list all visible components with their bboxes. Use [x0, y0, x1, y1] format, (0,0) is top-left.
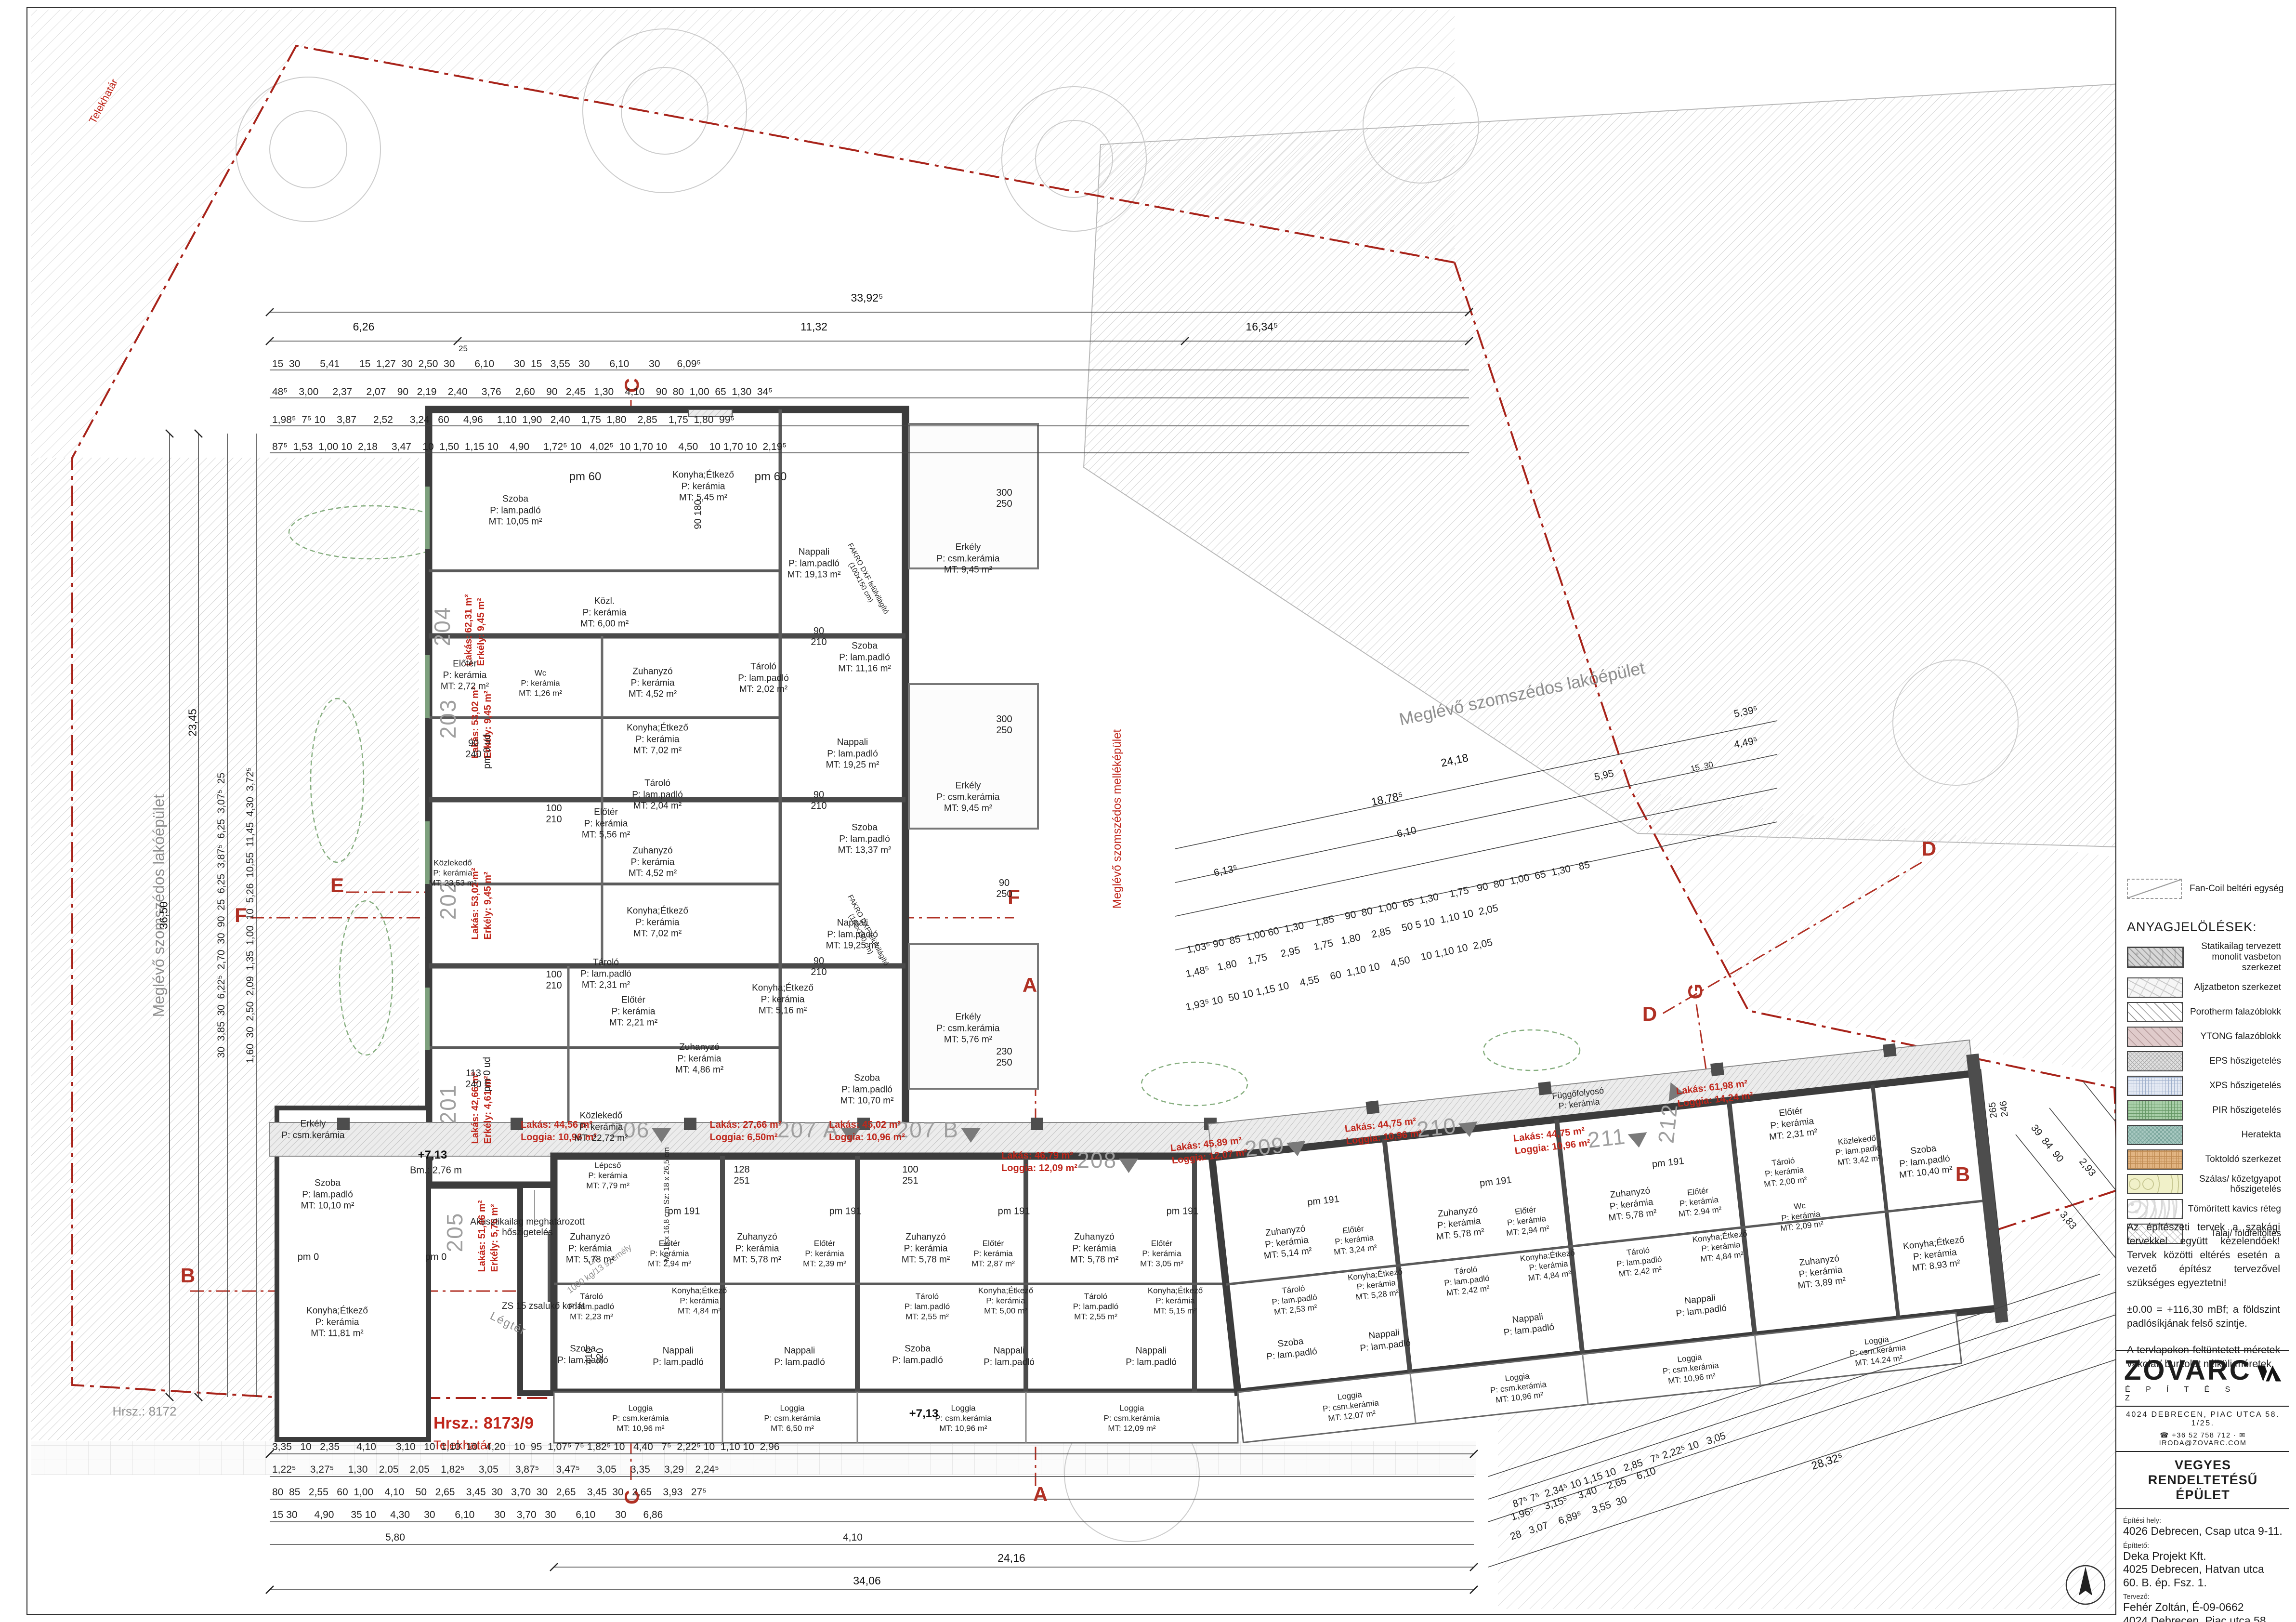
room-label: Konyha;Étkező P: kerámia MT: 5,15 m²	[1148, 1285, 1203, 1316]
office-address: 4024 DEBRECEN, PIAC UTCA 58. 1/25.	[2116, 1406, 2289, 1432]
swatch-aljzatbeton	[2127, 977, 2183, 998]
room-label: Szoba P: lam.padló	[892, 1343, 943, 1366]
note-coordination: Az építészeti tervek a szakági tervekkel…	[2127, 1221, 2280, 1291]
level-height: Bm.: 2,76 m	[410, 1165, 462, 1176]
dim-mark: 100 210	[546, 969, 562, 991]
dim-row: 15 30 4,90 35 10 4,30 30 6,10 30 3,70 30…	[272, 1509, 663, 1521]
room-label: Konyha;Étkező P: kerámia MT: 11,81 m²	[306, 1306, 368, 1340]
brand-name: ZOVARC	[2124, 1357, 2252, 1385]
room-label: Előtér P: kerámia MT: 2,21 m²	[609, 995, 657, 1029]
field-value: Fehér Zoltán, É-09-0662 4024 Debrecen, P…	[2123, 1601, 2283, 1622]
dim-mark: 90 240	[465, 738, 481, 760]
dim-total: 33,92⁵	[851, 291, 883, 304]
dim-mark: 100 210	[546, 803, 562, 825]
dim-row: 30 3,85 30 6,22⁵ 2,70 30 90 25 6,25 3,87…	[216, 773, 227, 1058]
dim-total: 36,50	[157, 901, 171, 929]
pm-mark: pm 0	[425, 1252, 446, 1263]
dim-total: 34,06	[853, 1574, 881, 1587]
field-value: 4026 Debrecen, Csap utca 9-11.	[2123, 1525, 2283, 1538]
level-mark: +7,13	[418, 1148, 447, 1162]
room-label: Tároló P: lam.padló MT: 2,04 m²	[632, 778, 683, 812]
room-label: Tároló P: lam.padló MT: 2,31 m²	[580, 957, 631, 991]
room-label: Előtér P: kerámia MT: 2,39 m²	[803, 1238, 846, 1268]
section-marker-D-left: D	[1642, 1002, 1657, 1026]
room-label: Zuhanyzó P: kerámia MT: 4,86 m²	[675, 1042, 723, 1076]
dim-mark: 230 250	[996, 1046, 1012, 1068]
dim-sub: 25	[459, 344, 468, 354]
room-label: Előtér P: kerámia MT: 5,56 m²	[582, 807, 630, 841]
field-value: Deka Projekt Kft. 4025 Debrecen, Hatvan …	[2123, 1550, 2283, 1590]
section-marker-B-right: B	[1955, 1163, 1970, 1186]
room-label: Konyha;Étkező P: kerámia MT: 5,00 m²	[978, 1285, 1033, 1316]
stair-geometry-note: M: 19 x 16,8 cm Sz: 18 x 26,5 cm	[663, 1147, 671, 1261]
room-label: Közlekedő P: kerámia MT: 23,53 m²	[429, 857, 476, 888]
room-label: Zuhanyzó P: kerámia MT: 5,78 m²	[566, 1232, 614, 1266]
room-label: Zuhanyzó P: kerámia MT: 5,78 m²	[733, 1232, 781, 1266]
room-label: Nappali P: lam.padló	[774, 1345, 825, 1368]
fancoil-label: Fan-Coil beltéri egység	[2190, 884, 2283, 894]
room-label: Zuhanyzó P: kerámia MT: 5,78 m²	[902, 1232, 950, 1266]
pm-mark: pm 60	[569, 470, 602, 484]
dim-row: 3,35 10 2,35 4,10 3,10 10 1,10 10 4,20 1…	[272, 1441, 779, 1453]
room-label: Tároló P: lam.padló MT: 2,55 m²	[905, 1291, 950, 1321]
section-marker-A-top: A	[1023, 974, 1037, 997]
unit-208-triangle	[1119, 1159, 1139, 1173]
legend-item: Toktoldó szerkezet	[2127, 1149, 2281, 1170]
legend-item: Szálas/ kőzetgyapot hőszigetelés	[2127, 1174, 2281, 1195]
room-label: Zuhanyzó P: kerámia MT: 4,52 m²	[629, 666, 677, 700]
info-panel: Fan-Coil beltéri egység ANYAGJELÖLÉSEK: …	[2115, 7, 2290, 1615]
dim-total: 23,45	[186, 709, 199, 737]
dim-mark: 90 180	[693, 500, 704, 529]
dim-mark: 90 210	[811, 956, 827, 978]
dim-seg: 6,26	[353, 320, 375, 333]
unit-204-areas: Lakás: 62,31 m²Erkély: 9,45 m²	[462, 594, 487, 666]
level-mark: +7,13	[909, 1407, 939, 1421]
room-label: Loggia P: csm.kerámia MT: 12,09 m²	[1103, 1403, 1160, 1433]
unit-206-triangle	[652, 1128, 671, 1143]
materials-legend: ANYAGJELÖLÉSEK: Statikailag tervezett mo…	[2127, 920, 2281, 1248]
field-label: Tervező:	[2123, 1593, 2283, 1601]
legend-item: EPS hőszigetelés	[2127, 1051, 2281, 1071]
unit-204-number: 204	[429, 607, 455, 646]
legend-item: Heratekta	[2127, 1125, 2281, 1145]
room-label: Tároló P: lam.padló MT: 2,23 m²	[569, 1291, 615, 1321]
dim-mark: 100 251	[902, 1164, 918, 1187]
unit-207A-areas: Lakás: 27,66 m²Loggia: 6,50m²	[710, 1119, 782, 1144]
swatch-kozetgyapot	[2127, 1174, 2183, 1194]
dim-total: 24,16	[997, 1552, 1025, 1565]
room-label: Tároló P: lam.padló MT: 2,55 m²	[1073, 1291, 1119, 1321]
legend-item: Tömörített kavics réteg	[2127, 1199, 2281, 1219]
dim-row: 15 30 5,41 15 1,27 30 2,50 30 6,10 30 15…	[272, 358, 701, 370]
swatch-porotherm	[2127, 1002, 2183, 1022]
legend-item: YTONG falazóblokk	[2127, 1027, 2281, 1047]
section-marker-G: G	[1684, 984, 1707, 1000]
project-fields: Építési hely: 4026 Debrecen, Csap utca 9…	[2116, 1508, 2289, 1622]
neighbor-outbuilding-label: Meglévő szomszédos melléképület	[1111, 729, 1124, 909]
pm-mark: pm 60	[755, 470, 787, 484]
swatch-xps	[2127, 1076, 2183, 1096]
section-marker-E: E	[330, 874, 344, 897]
room-label: Nappali P: lam.padló	[653, 1345, 704, 1368]
hrsz-main-label: Hrsz.: 8173/9	[433, 1414, 534, 1433]
room-label: Konyha;Étkező P: kerámia MT: 5,45 m²	[672, 470, 734, 504]
swatch-monolit-vasbeton	[2127, 947, 2184, 968]
room-label: Konyha;Étkező P: kerámia MT: 7,02 m²	[627, 906, 688, 940]
room-label: Lépcső P: kerámia MT: 7,79 m²	[586, 1160, 630, 1190]
pm-mark: pm 191	[1167, 1206, 1199, 1217]
drawing-sheet: Meglévő szomszédos lakóépület Meglévő sz…	[0, 0, 2296, 1622]
room-label: Szoba P: lam.padló MT: 10,10 m²	[301, 1178, 354, 1212]
swatch-kavics	[2127, 1199, 2183, 1219]
room-label: Közlekedő P: kerámia MT: 22,72 m²	[575, 1110, 628, 1145]
section-marker-A-bottom: A	[1033, 1483, 1048, 1506]
legend-item: Aljzatbeton szerkezet	[2127, 977, 2281, 998]
room-label: Erkély P: csm.kerámia MT: 9,45 m²	[937, 542, 1000, 576]
section-marker-B-left: B	[181, 1264, 195, 1287]
office-contact: ☎ +36 52 758 712 · ✉ IRODA@ZOVARC.COM	[2116, 1432, 2289, 1451]
room-label: Zuhanyzó P: kerámia MT: 5,78 m²	[1070, 1232, 1118, 1266]
legend-item: PIR hőszigetelés	[2127, 1100, 2281, 1121]
legend-item: Porotherm falazóblokk	[2127, 1002, 2281, 1022]
swatch-ytong	[2127, 1027, 2183, 1047]
unit-205-number: 205	[442, 1213, 468, 1253]
neighbor-building-region	[1084, 82, 2153, 848]
swatch-toktoldo	[2127, 1149, 2183, 1170]
unit-208-areas: Lakás: 46,79 m²Loggia: 12,09 m²	[1001, 1149, 1077, 1174]
dim-seg: 5,80	[385, 1532, 405, 1543]
section-marker-D-right: D	[1922, 837, 1936, 860]
logo-icon	[2257, 1358, 2282, 1388]
dim-row: 1,22⁵ 3,27⁵ 1,30 2,05 2,05 1,82⁵ 3,05 3,…	[272, 1464, 719, 1476]
room-label: Tároló P: lam.padló MT: 2,02 m²	[738, 661, 789, 696]
room-label: Előtér P: kerámia MT: 2,87 m²	[971, 1238, 1015, 1268]
room-label: Konyha;Étkező P: kerámia MT: 7,02 m²	[627, 723, 688, 757]
room-label: Zuhanyzó P: kerámia MT: 4,52 m²	[629, 845, 677, 880]
room-label: Nappali P: lam.padló	[984, 1345, 1035, 1368]
room-label: Közl. P: kerámia MT: 6,00 m²	[580, 596, 629, 630]
unit-201-number: 201	[435, 1084, 461, 1124]
dim-row: 87⁵ 1,53 1,00 10 2,18 3,47 10 1,50 1,15 …	[272, 441, 787, 453]
field-label: Építési hely:	[2123, 1517, 2283, 1525]
room-label: Szoba P: lam.padló MT: 11,16 m²	[838, 641, 891, 675]
pm-mark: pm 191	[668, 1206, 700, 1217]
pm-mark: pm 191	[998, 1206, 1030, 1217]
dim-mark: 90 210	[811, 626, 827, 648]
room-label: Nappali P: lam.padló	[1126, 1345, 1177, 1368]
room-label: Szoba P: lam.padló MT: 10,05 m²	[489, 494, 542, 528]
hrsz-left-label: Hrsz.: 8172	[113, 1404, 177, 1419]
dim-mark: 90 250	[996, 878, 1012, 900]
pm-mark: pm 191	[829, 1206, 862, 1217]
brand-subtitle: É P Í T É S Z	[2125, 1385, 2252, 1403]
room-label: Erkély P: csm.kerámia MT: 9,45 m²	[937, 780, 1000, 815]
unit-203-number: 203	[435, 699, 461, 739]
unit-207B-areas: Lakás: 45,02 m²Loggia: 10,96 m²	[829, 1119, 905, 1144]
legend-item: XPS hőszigetelés	[2127, 1076, 2281, 1096]
room-label: Wc P: kerámia MT: 1,26 m²	[519, 668, 562, 698]
dim-mark: 410 320	[584, 1348, 606, 1364]
fancoil-legend-item: Fan-Coil beltéri egység	[2127, 879, 2283, 899]
logo: ZOVARC É P Í T É S Z	[2116, 1351, 2289, 1406]
title-block: ZOVARC É P Í T É S Z 4024 DEBRECEN, PIAC…	[2116, 1350, 2289, 1622]
legend-item: Statikailag tervezett monolit vasbeton s…	[2127, 941, 2281, 973]
unit-207B-triangle	[961, 1128, 980, 1143]
field-label: Építtető:	[2123, 1542, 2283, 1550]
room-label: Szoba P: lam.padló MT: 10,70 m²	[840, 1073, 894, 1107]
room-label: Nappali P: lam.padló MT: 19,13 m²	[787, 547, 841, 581]
note-datum: ±0.00 = +116,30 mBf; a földszint padlósí…	[2127, 1303, 2280, 1331]
room-label: Loggia P: csm.kerámia MT: 10,96 m²	[612, 1403, 669, 1433]
swatch-pir	[2127, 1100, 2183, 1121]
floor-plan-canvas	[0, 0, 2296, 1622]
room-label: Előtér P: kerámia MT: 2,72 m²	[441, 659, 489, 693]
project-title: VEGYES RENDELTETÉSŰ ÉPÜLET	[2116, 1451, 2289, 1508]
pm-mark: pm 0 ud	[482, 1057, 493, 1092]
unit-207B-marker: 207 B	[896, 1117, 981, 1143]
pm-mark: pm 0	[298, 1252, 319, 1263]
room-label: Loggia P: csm.kerámia MT: 6,50 m²	[764, 1403, 820, 1433]
room-label: Konyha;Étkező P: kerámia MT: 4,84 m²	[672, 1285, 727, 1316]
room-label: Nappali P: lam.padló MT: 19,25 m²	[826, 737, 879, 771]
room-label: Erkély P: csm.kerámia MT: 5,76 m²	[937, 1012, 1000, 1046]
dim-row: 1,98⁵ 7⁵ 10 3,87 2,52 3,24 60 4,96 1,10 …	[272, 414, 735, 426]
dim-mark: 300 250	[996, 714, 1012, 736]
dim-mark: 300 250	[996, 488, 1012, 510]
dim-row: 1,60 30 2,50 2,09 1,35 1,00 10 5,26 10,5…	[245, 767, 256, 1063]
swatch-heratekta	[2127, 1125, 2183, 1145]
dim-row: 48⁵ 3,00 2,37 2,07 90 2,19 2,40 3,76 2,6…	[272, 386, 773, 398]
room-label: Szoba P: lam.padló MT: 13,37 m²	[838, 822, 892, 857]
room-label: Loggia P: csm.kerámia MT: 10,96 m²	[935, 1403, 991, 1433]
fancoil-symbol	[2127, 879, 2182, 899]
room-label: Előtér P: kerámia MT: 3,05 m²	[1140, 1238, 1183, 1268]
dim-mark: 90 210	[811, 790, 827, 812]
dim-row: 80 85 2,55 60 1,00 4,10 50 2,65 3,45 30 …	[272, 1487, 707, 1498]
legend-title: ANYAGJELÖLÉSEK:	[2127, 920, 2281, 935]
dim-seg: 16,34⁵	[1246, 320, 1278, 333]
dim-seg: 11,32	[800, 320, 827, 333]
pm-mark: pm 0 ud	[482, 734, 493, 769]
dim-mark: 128 251	[734, 1164, 749, 1187]
room-label: Konyha;Étkező P: kerámia MT: 5,16 m²	[752, 983, 813, 1017]
swatch-eps	[2127, 1051, 2183, 1071]
dim-mark: 113 240	[465, 1068, 481, 1090]
room-label: Erkély P: csm.kerámia	[282, 1118, 345, 1141]
unit-208-marker: 208	[1077, 1147, 1138, 1173]
dim-seg: 4,10	[843, 1532, 863, 1543]
